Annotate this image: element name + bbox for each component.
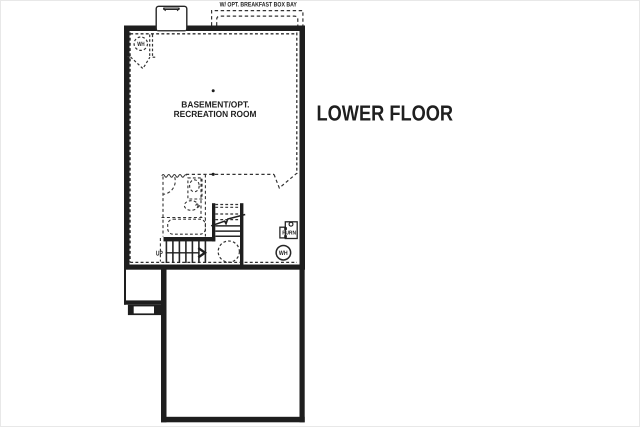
svg-text:LOWER FLOOR: LOWER FLOOR [317,101,454,126]
svg-text:W/ OPT. BREAKFAST BOX BAY: W/ OPT. BREAKFAST BOX BAY [220,1,298,8]
svg-text:UP: UP [156,250,163,257]
svg-text:RECREATION ROOM: RECREATION ROOM [174,109,257,119]
svg-text:WH: WH [137,41,145,48]
svg-text:WH: WH [279,250,288,257]
svg-text:FURN: FURN [282,231,296,237]
